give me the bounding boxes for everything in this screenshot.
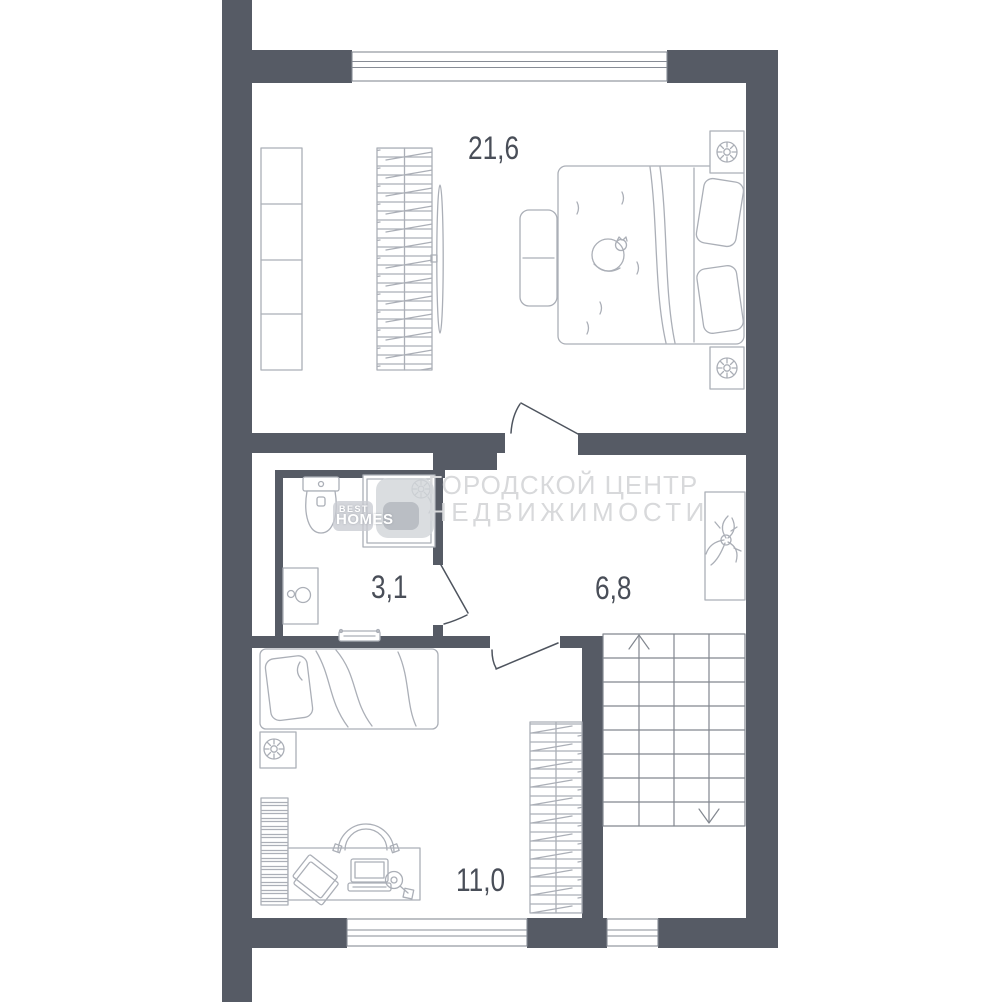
room-label-bedroom: 21,6 [468, 132, 519, 164]
plant-picture [705, 492, 745, 600]
stairs-down-arrow [699, 634, 719, 823]
tv [431, 185, 443, 333]
door-bedroom [511, 403, 578, 434]
room-label-hallway: 6,8 [595, 572, 631, 604]
book-shelf [261, 798, 288, 905]
best-homes-logo-homes: HOMES [336, 512, 394, 527]
nightstand-2 [260, 732, 296, 768]
room-label-bedroom2: 11,0 [456, 864, 505, 896]
window-bottom-stairs [607, 919, 658, 946]
nightstand-top [710, 131, 744, 173]
window-bottom-room [347, 919, 527, 946]
staircase [603, 634, 745, 826]
double-bed [558, 166, 745, 344]
nightstand-bottom [710, 347, 744, 389]
room-label-bathroom: 3,1 [371, 571, 407, 603]
window-top [352, 52, 667, 81]
door-bathroom [441, 565, 468, 624]
shelving-unit [261, 148, 302, 370]
bench [520, 210, 557, 306]
floorplan-canvas: ГОРОДСКОЙ ЦЕНТР НЕДВИЖИМОСТИ BEST HOMES … [0, 0, 1000, 1002]
single-bed [260, 649, 438, 729]
wardrobe [530, 722, 582, 913]
sink [283, 568, 318, 624]
watermark-line1: ГОРОДСКОЙ ЦЕНТР [428, 472, 698, 498]
dresser [377, 148, 432, 370]
watermark-line2: НЕДВИЖИМОСТИ [428, 499, 709, 525]
door-bedroom2 [492, 643, 558, 669]
towel-rail [339, 630, 380, 642]
